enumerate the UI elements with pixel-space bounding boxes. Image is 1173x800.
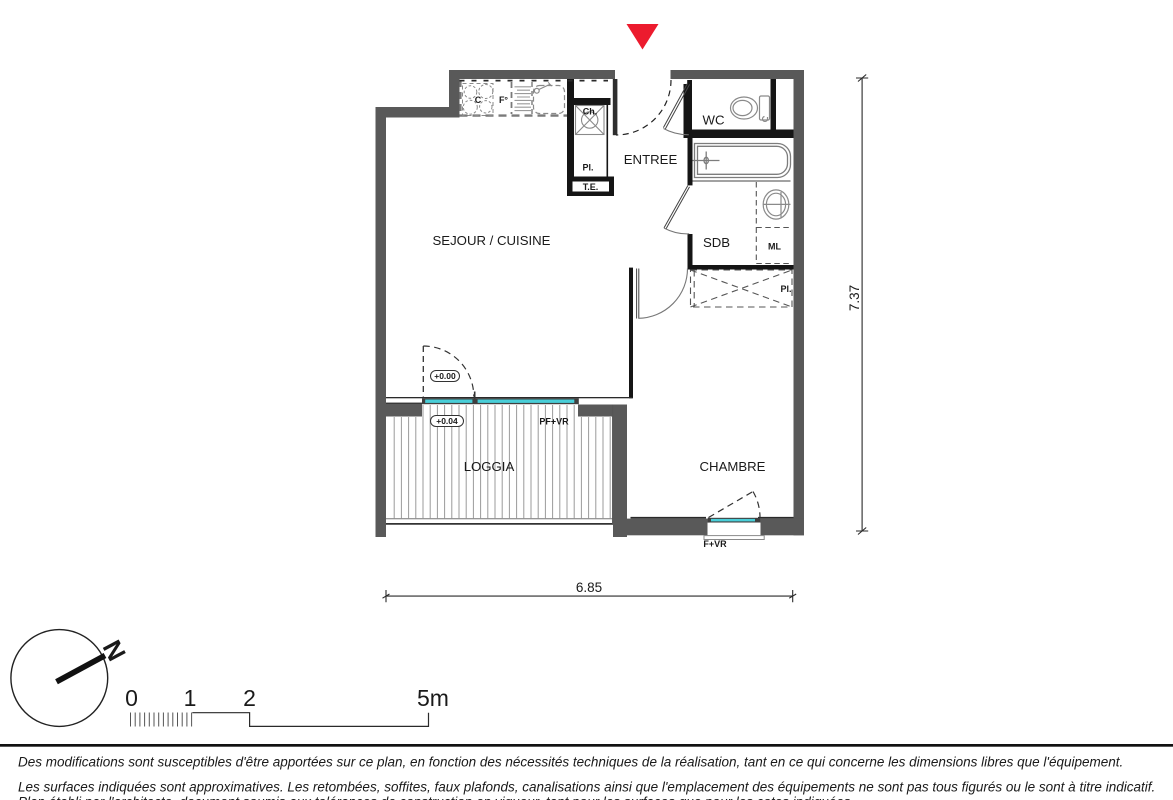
svg-text:5m: 5m bbox=[417, 685, 449, 711]
svg-text:ML: ML bbox=[768, 242, 781, 252]
svg-text:0: 0 bbox=[125, 685, 138, 711]
svg-text:LOGGIA: LOGGIA bbox=[464, 459, 515, 474]
svg-text:7.37: 7.37 bbox=[847, 285, 862, 311]
svg-text:6.85: 6.85 bbox=[576, 580, 602, 595]
svg-text:ENTREE: ENTREE bbox=[624, 152, 678, 167]
svg-text:Plan établi par l'architecte,: Plan établi par l'architecte, document s… bbox=[18, 795, 854, 800]
svg-text:Les surfaces indiquées sont ap: Les surfaces indiquées sont approximativ… bbox=[18, 780, 1155, 795]
svg-text:Pl.: Pl. bbox=[582, 163, 593, 173]
svg-text:2: 2 bbox=[243, 685, 256, 711]
svg-text:T.E.: T.E. bbox=[583, 182, 599, 192]
svg-text:CHAMBRE: CHAMBRE bbox=[700, 459, 766, 474]
svg-text:+0.00: +0.00 bbox=[434, 371, 456, 381]
svg-text:PF+VR: PF+VR bbox=[539, 417, 569, 427]
svg-text:F°: F° bbox=[499, 95, 508, 105]
svg-text:C: C bbox=[475, 95, 482, 105]
svg-text:Des modifications sont suscept: Des modifications sont susceptibles d'êt… bbox=[18, 755, 1123, 770]
svg-text:Ch.: Ch. bbox=[583, 107, 598, 117]
svg-text:1: 1 bbox=[184, 685, 197, 711]
svg-text:WC: WC bbox=[703, 113, 725, 128]
svg-text:Pl.: Pl. bbox=[780, 284, 791, 294]
svg-text:SEJOUR / CUISINE: SEJOUR / CUISINE bbox=[433, 233, 551, 248]
svg-text:SDB: SDB bbox=[703, 235, 730, 250]
svg-text:+0.04: +0.04 bbox=[436, 416, 458, 426]
svg-text:F+VR: F+VR bbox=[703, 539, 727, 549]
